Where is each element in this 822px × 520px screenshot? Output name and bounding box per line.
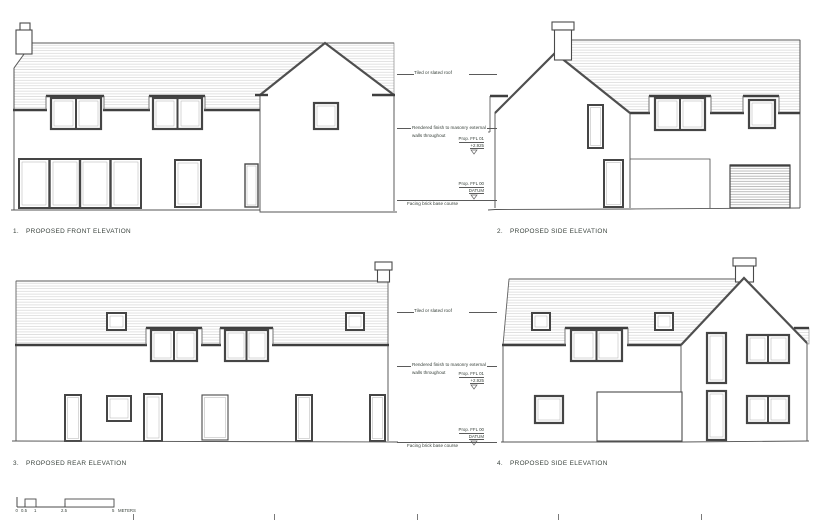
ground-window xyxy=(175,160,201,207)
level-marker-icon xyxy=(470,384,478,390)
annotation-roof: Tiled or slated roof xyxy=(414,308,452,313)
drawing-label-1: 1.PROPOSED FRONT ELEVATION xyxy=(13,228,131,235)
leader-line xyxy=(487,128,497,129)
drawing-title: PROPOSED SIDE ELEVATION xyxy=(510,228,608,235)
ffl01-value: +2.925 xyxy=(444,143,484,150)
scale-label-5: 5 xyxy=(112,508,114,513)
page-tick xyxy=(701,514,702,520)
upper-window xyxy=(655,98,705,130)
drawing-label-2: 2.PROPOSED SIDE ELEVATION xyxy=(497,228,608,235)
annotation-walls-1: Rendered finish to masonry external xyxy=(412,125,486,130)
entrance-door xyxy=(245,164,258,207)
ground-window xyxy=(296,395,312,441)
french-door xyxy=(202,395,228,440)
glazed-doors xyxy=(19,159,141,208)
drawing-title: PROPOSED SIDE ELEVATION xyxy=(510,460,608,467)
ground-window xyxy=(747,396,789,423)
page-tick xyxy=(133,514,134,520)
side-door xyxy=(604,160,623,207)
drawing-label-4: 4.PROPOSED SIDE ELEVATION xyxy=(497,460,608,467)
annotation-roof: Tiled or slated roof xyxy=(414,70,452,75)
side-elevation-4-drawing xyxy=(488,256,810,448)
drawing-number: 1. xyxy=(13,228,19,235)
upper-window xyxy=(571,330,622,361)
drawing-title: PROPOSED FRONT ELEVATION xyxy=(26,228,131,235)
page-tick xyxy=(558,514,559,520)
upper-window xyxy=(51,98,101,129)
rear-elevation-drawing xyxy=(10,258,400,448)
rear-door xyxy=(144,394,162,441)
scale-label-0: 0 xyxy=(16,508,18,513)
drawing-number: 3. xyxy=(13,460,19,467)
scale-label-1: 1 xyxy=(34,508,36,513)
upper-window xyxy=(225,330,268,361)
chimney xyxy=(16,23,32,54)
ground-line xyxy=(488,208,800,210)
side-elevation-2-drawing xyxy=(488,14,810,220)
ground-window xyxy=(65,395,81,441)
annotation-walls-2: walls throughout xyxy=(412,133,445,138)
upper-window xyxy=(749,100,775,128)
ffl00-value: DATUM xyxy=(444,434,484,441)
annotation-walls-2: walls throughout xyxy=(412,370,445,375)
drawing-title: PROPOSED REAR ELEVATION xyxy=(26,460,127,467)
single-storey-outline xyxy=(630,159,710,208)
scale-label-25: 2.5 xyxy=(61,508,67,513)
rooflight xyxy=(107,313,126,330)
leader-line xyxy=(397,366,411,367)
leader-line xyxy=(469,312,497,313)
annotation-walls-1: Rendered finish to masonry external xyxy=(412,362,486,367)
drawing-number: 2. xyxy=(497,228,503,235)
scale-label-05: 0.5 xyxy=(21,508,27,513)
chimney xyxy=(375,262,392,282)
level-marker-icon xyxy=(470,194,478,200)
leader-line xyxy=(397,74,414,75)
ffl01-value: +2.925 xyxy=(444,378,484,385)
ground-window xyxy=(107,396,131,421)
leader-line xyxy=(397,312,414,313)
ffl00-value: DATUM xyxy=(444,188,484,195)
upper-window xyxy=(747,335,789,363)
drawing-sheet: Tiled or slated roof Rendered finish to … xyxy=(0,0,822,520)
ground-window xyxy=(370,395,385,441)
drawing-number: 4. xyxy=(497,460,503,467)
annotation-base: Facing brick base course xyxy=(407,443,458,448)
annotation-base: Facing brick base course xyxy=(407,201,458,206)
leader-line xyxy=(487,366,497,367)
garage-door xyxy=(730,165,790,208)
garage-door xyxy=(597,392,682,441)
stair-window xyxy=(588,105,603,148)
scale-unit-label: METERS xyxy=(118,508,136,513)
page-tick xyxy=(417,514,418,520)
level-marker-icon xyxy=(470,440,478,446)
front-elevation-drawing xyxy=(10,20,400,220)
ground-window xyxy=(535,396,563,423)
chimney xyxy=(552,22,574,60)
leader-line xyxy=(469,74,497,75)
leader-line xyxy=(397,128,411,129)
page-tick xyxy=(274,514,275,520)
level-marker-icon xyxy=(470,149,478,155)
rooflight xyxy=(346,313,364,330)
upper-window xyxy=(153,98,202,129)
rooflight xyxy=(655,313,673,330)
drawing-label-3: 3.PROPOSED REAR ELEVATION xyxy=(13,460,127,467)
upper-window xyxy=(151,330,197,361)
rooflight xyxy=(532,313,550,330)
